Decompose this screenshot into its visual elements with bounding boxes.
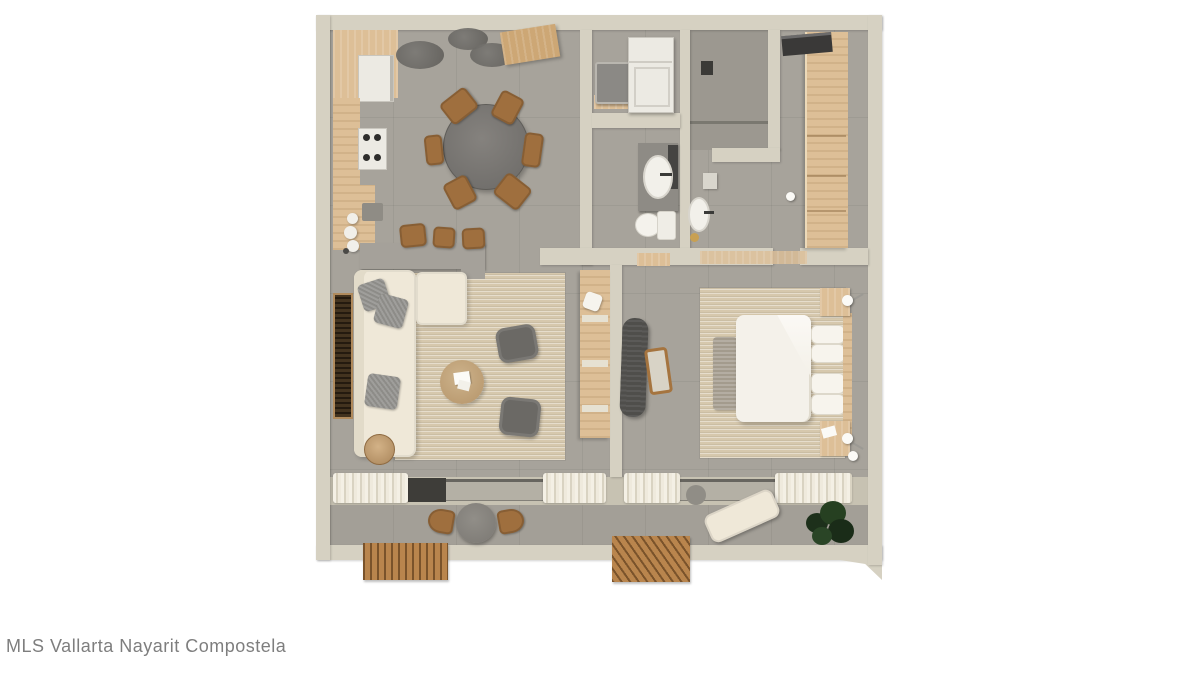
shower-floor [690,30,768,150]
curtain [624,473,680,503]
decor-vase [344,226,357,239]
bar-stool [399,223,427,249]
ensuite-shelf [703,173,717,189]
dining-chair [423,134,444,166]
sliding-door-panel [408,478,446,502]
lounge-chaise [619,318,648,418]
slat-console [333,293,353,419]
terrace-table [456,503,496,543]
decor-vase [347,213,358,224]
headboard [843,313,852,437]
outer-wall-left [316,15,330,560]
wall-bedroom-top-right [800,248,868,265]
wardrobe-shelf-line [807,210,846,212]
wall-shower-closet [768,30,780,150]
bed-foot-bench [713,337,737,410]
wardrobe-shelf-line [807,175,846,177]
toilet-tank [657,211,676,240]
sink-faucet [660,173,672,176]
pouf [498,396,542,438]
washer-seam [628,61,672,63]
outer-wall-right [868,15,882,565]
stove-burner [363,134,370,141]
bed-pillow [811,394,845,415]
floor-plan [316,15,882,585]
terrace-floor [330,505,868,545]
window-glass [446,479,543,501]
stove-burner [363,154,370,161]
bed-pillow [811,325,845,344]
stove-burner [374,134,381,141]
table-lamp [842,433,853,444]
fridge [358,55,394,102]
terrace-side-table [686,485,706,505]
decor-vase-dark [343,248,349,254]
watermark-text: MLS Vallarta Nayarit Compostela [6,636,286,657]
ensuite-faucet [704,211,714,214]
shower-drain [701,61,713,75]
wall-kitchen-laundry [580,30,592,265]
pouf [494,323,539,364]
wardrobe-shelf-line [807,135,846,137]
bar-stool [461,227,485,249]
side-table [364,434,395,465]
ensuite-sink [688,197,710,232]
kitchen-sink [362,203,383,221]
bed-pillow [811,344,845,363]
curtain [543,473,606,503]
cooktop [358,128,387,170]
sofa-pillow [364,373,401,410]
stove-burner [374,154,381,161]
wall-shower-bottom [712,148,780,162]
bedroom-wall-tray [637,253,670,266]
outer-wall-top [316,15,882,30]
console-shelf [582,315,608,322]
bed-pillow [811,373,845,394]
wall-laundry-bath [592,113,680,128]
real-estate-floorplan-image: { "watermark": "MLS Vallarta Nayarit Com… [0,0,1200,675]
curtain [333,473,408,503]
washer-lid [634,67,670,107]
closet-wardrobe [805,32,848,248]
table-lamp [848,451,858,461]
table-lamp [842,295,853,306]
closet-door-knob [786,192,795,201]
ensuite-stool [690,233,699,242]
pendant-lamp [396,41,444,69]
laundry-basket [595,62,631,104]
deck-step [363,543,448,580]
wardrobe-base-strip [700,251,807,264]
deck-step [612,536,690,582]
console-shelf [582,360,608,367]
sofa-ottoman [416,272,467,325]
shower-glass-line [690,121,768,124]
bathroom-sink [643,155,673,199]
console-shelf [582,405,608,412]
bar-stool [432,226,455,248]
potted-plant [802,499,858,549]
